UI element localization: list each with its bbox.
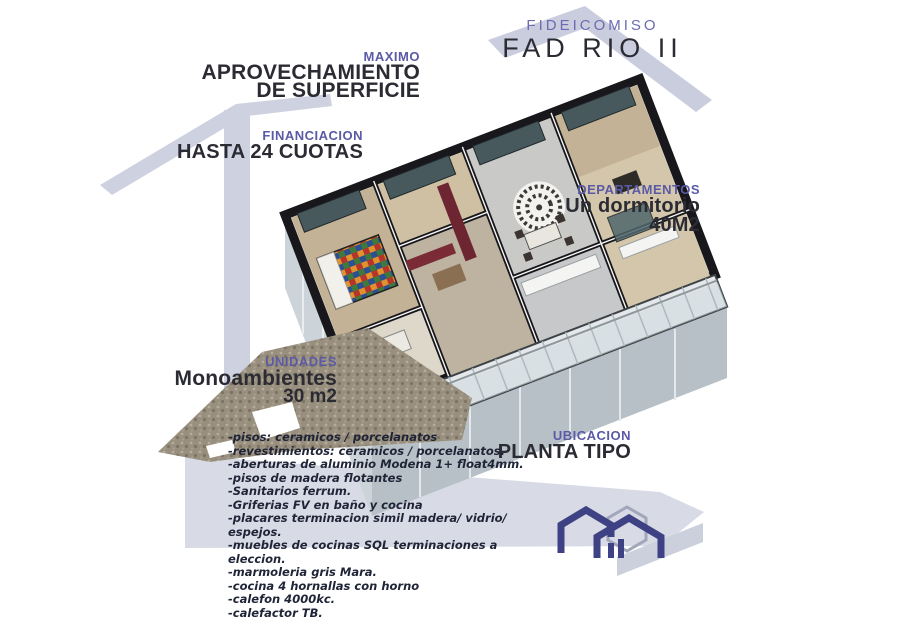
feature-item: -revestimientos: ceramicos / porcelanato… bbox=[228, 445, 528, 459]
feature-item: -marmoleria gris Mara. bbox=[228, 566, 528, 580]
callout-units: UNIDADES Monoambientes 30 m2 bbox=[77, 355, 337, 406]
callout-financing: FINANCIACION HASTA 24 CUOTAS bbox=[100, 129, 363, 162]
callout-surface: MAXIMO APROVECHAMIENTO DE SUPERFICIE bbox=[160, 50, 420, 100]
feature-item: -Griferias FV en baño y cocina bbox=[228, 499, 528, 513]
feature-list: -pisos: ceramicos / porcelanatos -revest… bbox=[228, 431, 528, 620]
feature-item: -cocina 4 hornallas con horno bbox=[228, 580, 528, 594]
poster-title: FAD RIO II bbox=[440, 34, 745, 62]
callout-apartments-line2: 40M2 bbox=[440, 216, 700, 235]
feature-item: -pisos de madera flotantes bbox=[228, 472, 528, 486]
feature-item: -pisos: ceramicos / porcelanatos bbox=[228, 431, 528, 445]
callout-apartments: DEPARTAMENTOS Un dormitorio 40M2 bbox=[440, 183, 700, 235]
feature-item: -Sanitarios ferrum. bbox=[228, 485, 528, 499]
callout-surface-line2: DE SUPERFICIE bbox=[160, 82, 420, 100]
title-kicker: FIDEICOMISO bbox=[440, 18, 745, 34]
feature-item: -placares terminacion simil madera/ vidr… bbox=[228, 512, 528, 539]
feature-item: -muebles de cocinas SQL terminaciones a … bbox=[228, 539, 528, 566]
callout-units-line2: 30 m2 bbox=[77, 388, 337, 406]
poster-title-block: FIDEICOMISO FAD RIO II bbox=[440, 18, 745, 62]
callout-financing-line1: HASTA 24 CUOTAS bbox=[100, 143, 363, 162]
feature-item: -calefactor TB. bbox=[228, 607, 528, 620]
feature-item: -aberturas de aluminio Modena 1+ float4m… bbox=[228, 458, 528, 472]
